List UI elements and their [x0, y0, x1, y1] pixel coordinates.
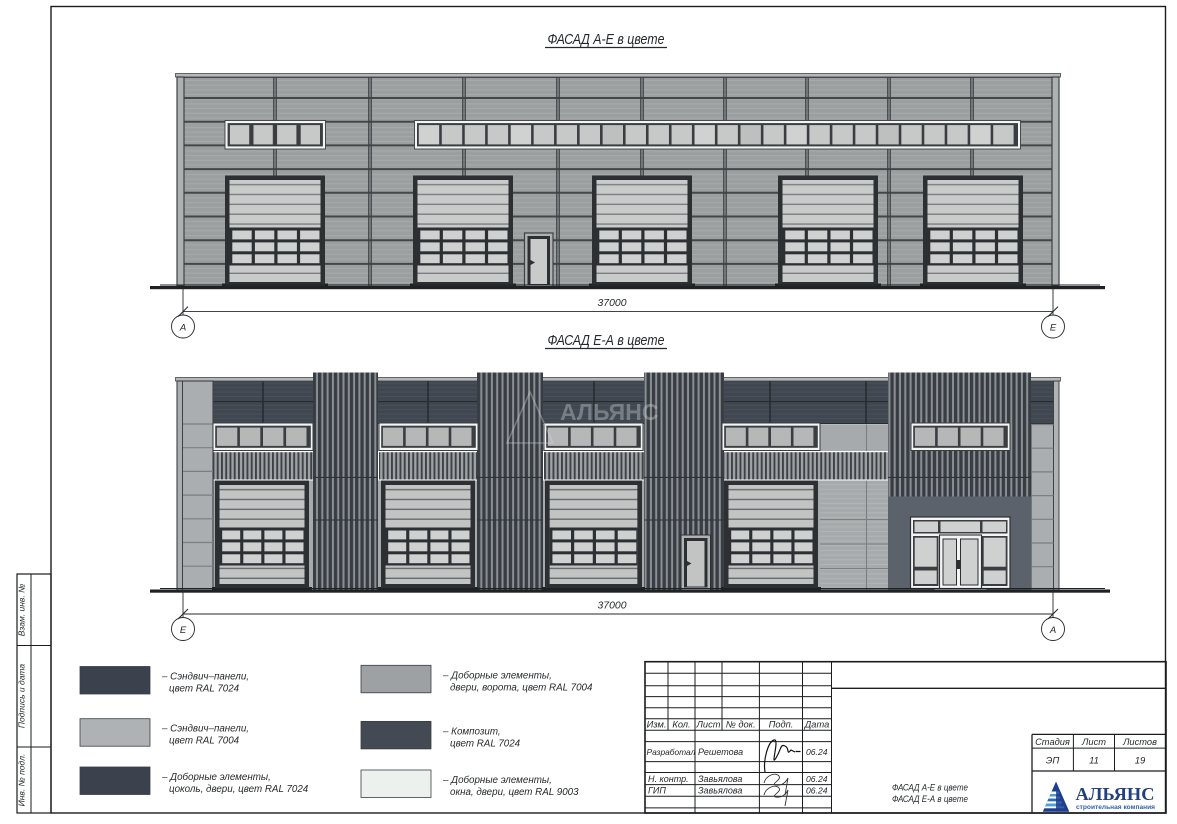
svg-text:ФАСАД Е-А в цвете: ФАСАД Е-А в цвете	[548, 333, 665, 349]
svg-text:цвет RAL 7024: цвет RAL 7024	[169, 684, 240, 695]
svg-text:ГИП: ГИП	[648, 786, 666, 796]
svg-text:цвет RAL 7004: цвет RAL 7004	[169, 736, 240, 747]
svg-text:Изм.: Изм.	[647, 720, 667, 730]
svg-text:Стадия: Стадия	[1035, 737, 1070, 747]
svg-text:цоколь, двери, цвет RAL 7024: цоколь, двери, цвет RAL 7024	[169, 784, 309, 795]
svg-text:Листов: Листов	[1122, 737, 1157, 747]
svg-text:ФАСАД А-Е в цвете: ФАСАД А-Е в цвете	[892, 783, 968, 794]
svg-text:06.24: 06.24	[806, 774, 828, 784]
svg-text:Лист: Лист	[1081, 737, 1106, 747]
svg-text:Кол.: Кол.	[672, 720, 690, 730]
svg-text:06.24: 06.24	[806, 747, 828, 757]
svg-text:Завьялова: Завьялова	[698, 786, 742, 796]
svg-text:– Сэндвич–панели,: – Сэндвич–панели,	[161, 672, 249, 683]
svg-text:Инв. № подл.: Инв. № подл.	[17, 754, 27, 807]
svg-text:окна, двери, цвет RAL 9003: окна, двери, цвет RAL 9003	[450, 787, 579, 798]
svg-text:Взам. инв. №: Взам. инв. №	[17, 584, 27, 637]
svg-text:№ док.: № док.	[726, 720, 756, 730]
svg-text:А: А	[179, 323, 186, 334]
svg-text:– Композит,: – Композит,	[442, 726, 501, 737]
svg-text:Подпись и дата: Подпись и дата	[17, 664, 27, 729]
svg-text:Лист: Лист	[696, 720, 721, 730]
svg-text:– Доборные элементы,: – Доборные элементы,	[442, 670, 552, 681]
svg-text:АЛЬЯНС: АЛЬЯНС	[1076, 784, 1155, 804]
svg-text:ЭП: ЭП	[1046, 756, 1060, 767]
svg-text:37000: 37000	[598, 297, 627, 309]
svg-text:06.24: 06.24	[806, 786, 828, 796]
svg-text:Дата: Дата	[804, 720, 830, 730]
svg-text:Н. контр.: Н. контр.	[648, 774, 689, 784]
svg-text:АЛЬЯНС: АЛЬЯНС	[560, 399, 658, 425]
svg-text:строительная компания: строительная компания	[1076, 805, 1156, 811]
svg-text:– Доборные элементы,: – Доборные элементы,	[442, 775, 552, 786]
svg-text:Е: Е	[1050, 323, 1057, 334]
svg-text:– Сэндвич–панели,: – Сэндвич–панели,	[161, 724, 249, 735]
svg-text:11: 11	[1089, 756, 1099, 767]
svg-text:А: А	[1049, 625, 1056, 636]
svg-text:цвет RAL 7024: цвет RAL 7024	[450, 738, 521, 749]
svg-text:ФАСАД Е-А в цвете: ФАСАД Е-А в цвете	[892, 794, 968, 805]
svg-text:Разработал: Разработал	[647, 747, 696, 757]
svg-text:Подп.: Подп.	[769, 720, 794, 730]
svg-text:ФАСАД А-Е в цвете: ФАСАД А-Е в цвете	[548, 32, 665, 48]
svg-text:– Доборные элементы,: – Доборные элементы,	[161, 772, 271, 783]
svg-text:Решетова: Решетова	[698, 747, 743, 757]
svg-text:двери, ворота, цвет RAL 7004: двери, ворота, цвет RAL 7004	[450, 682, 593, 693]
svg-text:19: 19	[1135, 756, 1146, 767]
svg-text:Е: Е	[180, 625, 187, 636]
svg-text:37000: 37000	[598, 600, 627, 612]
svg-text:Завьялова: Завьялова	[698, 774, 742, 784]
